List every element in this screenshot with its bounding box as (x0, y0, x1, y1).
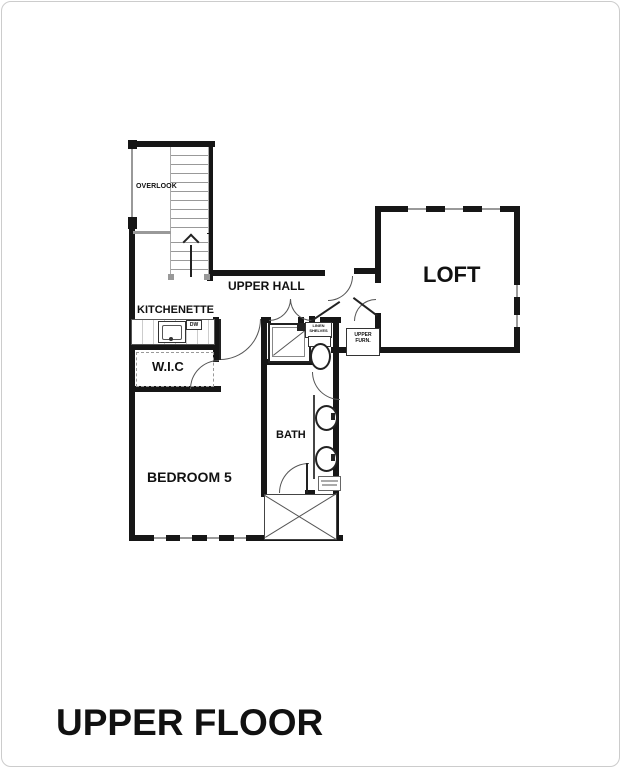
window-loft-top-1 (408, 206, 426, 212)
wall-left-outer (129, 229, 135, 541)
small-cabinet-label-box (318, 476, 341, 491)
wall-loft-right (514, 206, 520, 353)
stairs-newel-right (204, 274, 210, 280)
illegible-text-line (321, 480, 338, 482)
dishwasher-box: DW (186, 320, 202, 330)
shower-head-icon (297, 324, 305, 331)
wall-post-overlook (128, 217, 137, 229)
furnace-label-line2: FURN. (347, 339, 379, 345)
window-bedroom-4 (234, 535, 246, 541)
door-arc-toilet-nook (312, 372, 340, 400)
bath-faucet-1-icon (331, 413, 335, 420)
stairs-upper-flight (170, 147, 209, 233)
door-leaf-bath (306, 463, 308, 493)
wall-loft-left-upper (375, 206, 381, 283)
door-arc-bedroom (220, 319, 261, 360)
linen-label-line2: SHELVES (306, 329, 331, 334)
door-arc-double-left (269, 299, 291, 321)
window-loft-right-2 (514, 315, 520, 327)
bath-faucet-2-icon (331, 454, 335, 461)
room-label-bedroom5: BEDROOM 5 (147, 469, 232, 485)
window-bedroom-3 (207, 535, 219, 541)
kitchenette-faucet-icon (169, 337, 173, 341)
room-label-upper-hall: UPPER HALL (228, 279, 305, 293)
door-leaf-bedroom (219, 319, 221, 360)
illegible-text-line (322, 484, 337, 486)
window-bedroom-2 (180, 535, 192, 541)
wall-post-topleft (128, 140, 137, 149)
room-label-kitchenette: KITCHENETTE (137, 304, 214, 316)
window-loft-right-1 (514, 285, 520, 297)
window-loft-top-3 (482, 206, 500, 212)
upper-furnace-box: UPPER FURN. (346, 328, 380, 356)
stairs-newel-left (168, 274, 174, 280)
door-arc-double-right (290, 299, 312, 321)
window-loft-top-2 (445, 206, 463, 212)
dishwasher-label: DW (190, 322, 198, 328)
vanity-counter-edge (313, 395, 315, 479)
wall-bath-left (261, 317, 267, 497)
window-overlook-left (131, 149, 133, 217)
room-label-overlook: OVERLOOK (136, 183, 177, 190)
door-arc-hall (328, 276, 353, 301)
wall-hall-top (207, 270, 325, 276)
page-title: UPPER FLOOR (56, 702, 323, 744)
floor-plan-card: DW LINEN SHELVES UPPER FURN. OVERLOOK UP… (1, 1, 620, 767)
window-bedroom-1 (154, 535, 166, 541)
room-label-loft: LOFT (423, 262, 480, 288)
stairs-landing-line (133, 231, 171, 234)
toilet-bowl (310, 343, 331, 370)
room-label-bath: BATH (276, 429, 306, 441)
door-arc-bath (279, 463, 309, 493)
room-label-wic: W.I.C (149, 359, 187, 374)
